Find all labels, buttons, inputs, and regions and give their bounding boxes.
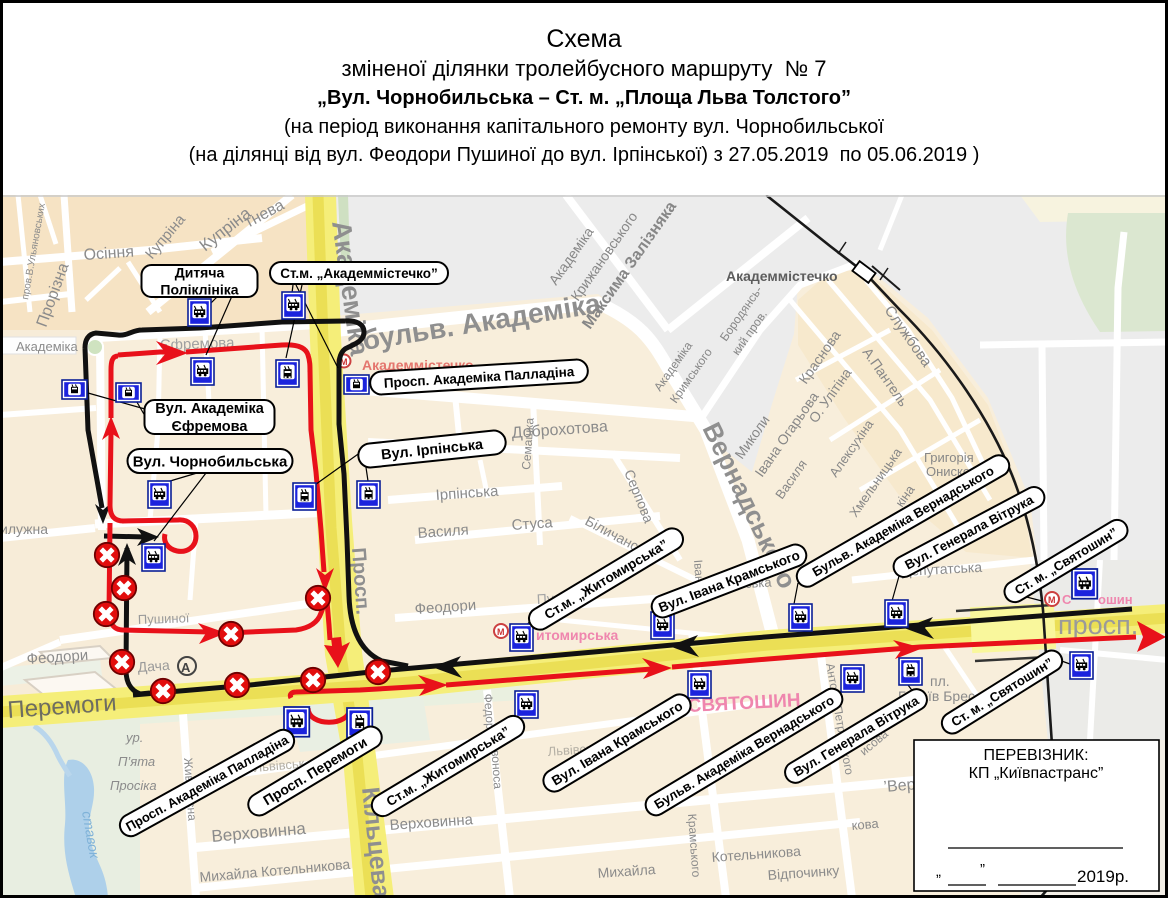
svg-text:Академіка: Академіка	[16, 339, 78, 354]
svg-text:ПЕРЕВІЗНИК:: ПЕРЕВІЗНИК:	[983, 747, 1088, 764]
svg-text:пл.: пл.	[930, 673, 950, 689]
svg-text:ошин: ошин	[1098, 592, 1133, 607]
svg-text:итомирська: итомирська	[536, 627, 619, 643]
svg-text:Василя: Василя	[417, 521, 469, 542]
svg-text:Осіння: Осіння	[83, 244, 134, 264]
svg-text:Академмістечко: Академмістечко	[726, 268, 838, 284]
svg-text:ур.: ур.	[125, 730, 143, 745]
svg-text:Стуса: Стуса	[511, 514, 554, 534]
svg-text:Вул. Чорнобильська: Вул. Чорнобильська	[133, 453, 288, 470]
svg-text:Поліклініка: Поліклініка	[160, 282, 238, 298]
svg-text:Григорія: Григорія	[924, 450, 974, 465]
svg-text:М: М	[497, 627, 505, 637]
svg-text:”: ”	[980, 861, 985, 878]
svg-text:А: А	[181, 660, 191, 675]
svg-text:Вул. Академіка: Вул. Академіка	[155, 401, 264, 417]
svg-text:С: С	[1062, 592, 1072, 607]
svg-text:П’ята: П’ята	[118, 754, 155, 769]
svg-text:Дитяча: Дитяча	[175, 264, 225, 280]
svg-text:Єфремова: Єфремова	[172, 419, 249, 435]
svg-text:Пушиної: Пушиної	[138, 610, 190, 627]
svg-text:Ст.м. „Академмістечко”: Ст.м. „Академмістечко”	[280, 266, 438, 281]
svg-text:„: „	[936, 863, 941, 880]
svg-text:Дача: Дача	[137, 657, 170, 675]
svg-text:Просіка: Просіка	[110, 778, 157, 793]
svg-text:М: М	[1048, 595, 1056, 605]
svg-text:кова: кова	[851, 816, 880, 833]
svg-text:2019р.: 2019р.	[1077, 867, 1129, 886]
svg-text:КП „Київпастранс”: КП „Київпастранс”	[969, 765, 1104, 782]
svg-text:илужна: илужна	[0, 521, 48, 537]
